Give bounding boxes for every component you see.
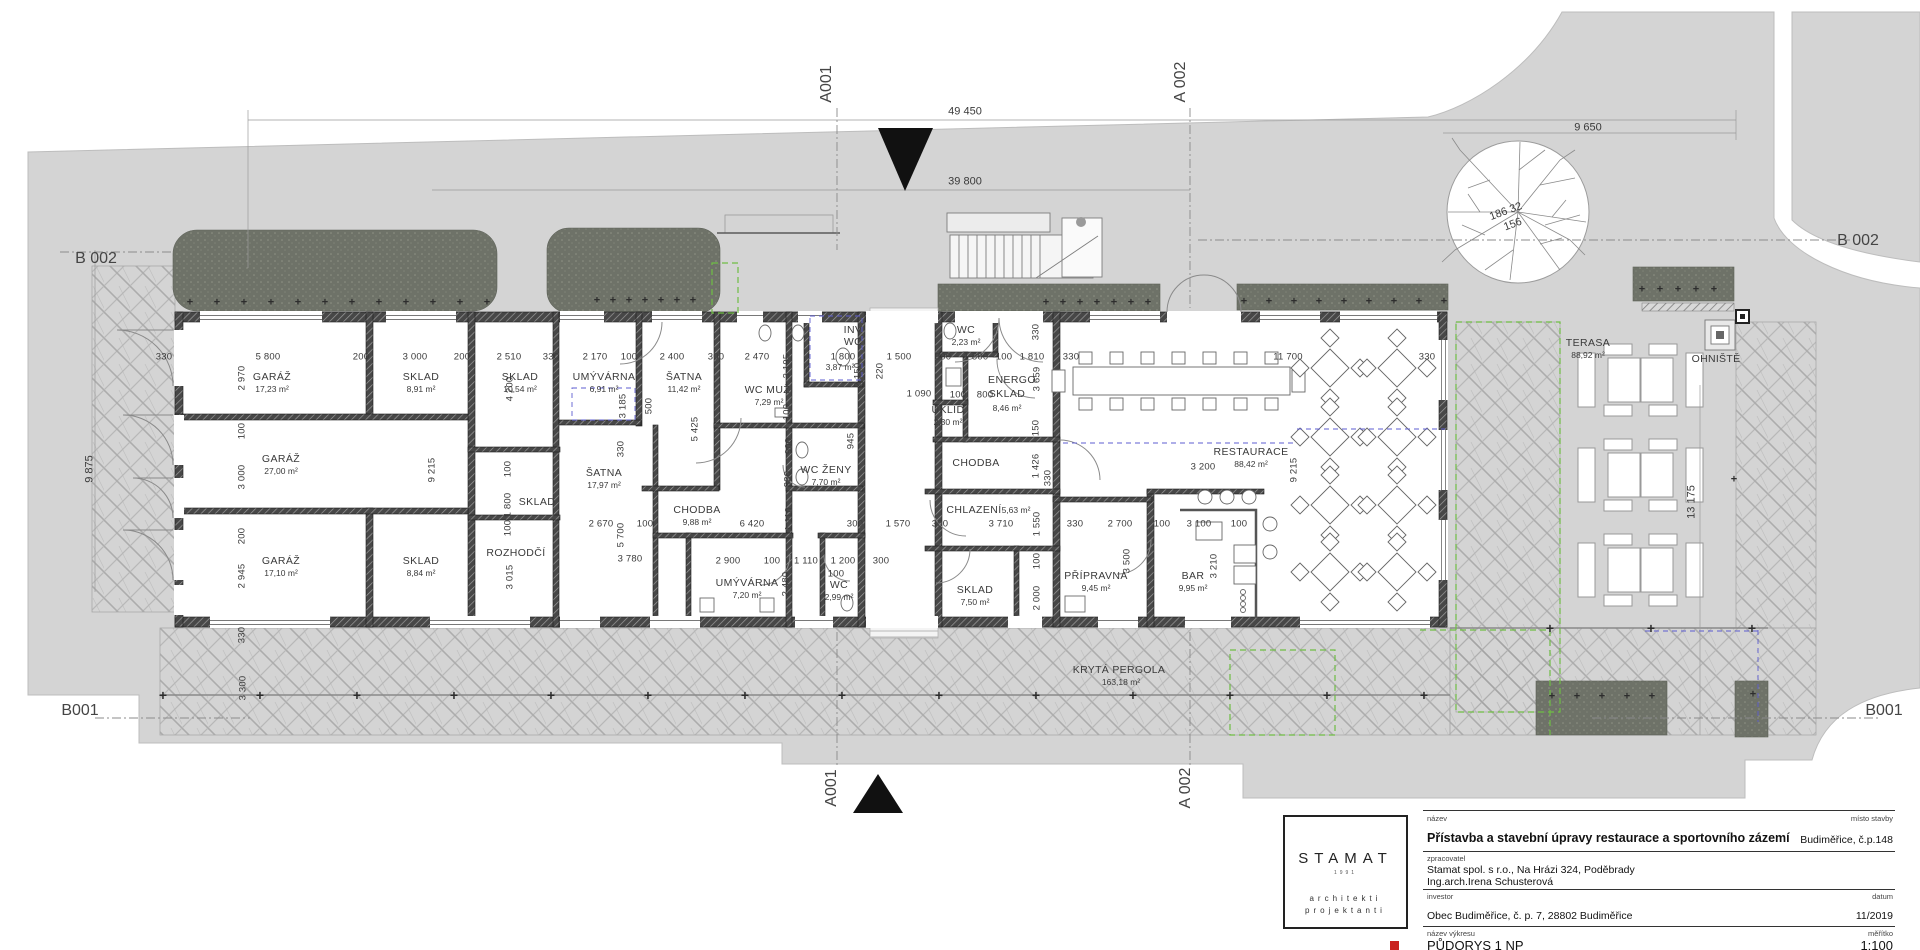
room-area: 27,00 m² xyxy=(264,467,298,476)
plant-mark: + xyxy=(1649,692,1655,703)
dim-label: 300 xyxy=(873,556,889,566)
dim-label: 3 000 xyxy=(237,465,247,490)
covered-pergola xyxy=(160,628,1450,735)
dim-label: 200 xyxy=(454,352,470,362)
field-label: místo stavby xyxy=(1851,814,1893,823)
section-marker-b001-right: B001 xyxy=(1865,703,1902,719)
section-marker-b002-left: B 002 xyxy=(75,251,117,267)
room-area: 17,10 m² xyxy=(264,569,298,578)
room-label: ENERGO xyxy=(988,375,1036,386)
room-label: UMÝVÁRNA xyxy=(716,578,779,589)
dim-label: 1 500 xyxy=(887,352,912,362)
plant-mark: + xyxy=(1077,298,1083,309)
plant-mark: + xyxy=(935,688,943,702)
room-area: 3,87 m² xyxy=(826,363,855,372)
plant-mark: + xyxy=(353,688,361,702)
plant-mark: + xyxy=(1366,297,1372,308)
plant-mark: + xyxy=(1316,297,1322,308)
dim-label: 100 xyxy=(764,556,780,566)
plant-mark: + xyxy=(1241,297,1247,308)
dim-label: 2 970 xyxy=(237,366,247,391)
field-label: zpracovatel xyxy=(1427,854,1465,863)
plant-mark: + xyxy=(1574,692,1580,703)
room-label: SKLAD xyxy=(403,372,439,383)
dim-label: 330 xyxy=(543,352,559,362)
dim-label: 5 800 xyxy=(256,352,281,362)
section-marker-b001-left: B001 xyxy=(61,703,98,719)
room-label: SKLAD xyxy=(989,389,1025,400)
overall-dimension: 9 875 xyxy=(85,455,96,483)
plant-mark: + xyxy=(674,296,680,307)
plant-mark: + xyxy=(268,298,274,309)
dim-label: 2 000 xyxy=(1032,586,1042,611)
plant-mark: + xyxy=(349,298,355,309)
dim-label: 1 110 xyxy=(794,556,818,566)
arrow-up-icon xyxy=(853,774,903,813)
plant-mark: + xyxy=(1748,621,1756,635)
plant-mark: + xyxy=(1599,692,1605,703)
field-label: název xyxy=(1427,814,1447,823)
plant-mark: + xyxy=(644,688,652,702)
room-label: INV xyxy=(844,325,863,336)
plant-mark: + xyxy=(1128,298,1134,309)
room-area: 9,45 m² xyxy=(1082,584,1111,593)
plant-mark: + xyxy=(376,298,382,309)
plant-mark: + xyxy=(241,298,247,309)
plant-mark: + xyxy=(1693,285,1699,296)
room-area: 88,92 m² xyxy=(1571,351,1605,360)
room-area: 17,23 m² xyxy=(255,385,289,394)
dim-label: 2 470 xyxy=(745,352,770,362)
room-area: 8,46 m² xyxy=(993,404,1022,413)
dim-label: 220 xyxy=(875,363,885,379)
logo-line2: projektanti xyxy=(1285,906,1406,915)
dim-label: 1 800 xyxy=(831,352,856,362)
plant-mark: + xyxy=(1032,688,1040,702)
plant-mark: + xyxy=(741,688,749,702)
room-label: GARÁŽ xyxy=(262,556,300,567)
plant-mark: + xyxy=(1111,298,1117,309)
dim-label: 300 xyxy=(932,519,948,529)
plant-mark: + xyxy=(256,688,264,702)
room-label: PŘÍPRAVNA xyxy=(1064,571,1128,582)
dim-label: 100 xyxy=(1032,553,1042,569)
plant-mark: + xyxy=(547,688,555,702)
room-area: 9,88 m² xyxy=(683,518,712,527)
dim-label: 9 215 xyxy=(1289,458,1299,483)
dim-label: 100 xyxy=(782,404,792,420)
project-place: Budiměřice, č.p.148 xyxy=(1800,834,1893,846)
plant-mark: + xyxy=(658,296,664,307)
plant-mark: + xyxy=(1341,297,1347,308)
dim-label: 100 xyxy=(1231,519,1247,529)
room-label: GARÁŽ xyxy=(262,454,300,465)
room-area: 8,91 m² xyxy=(407,385,436,394)
dim-label: 330 xyxy=(1043,470,1053,486)
dim-label: 1 800 xyxy=(503,493,513,518)
stamat-logo: STAMAT 1991 architekti projektanti xyxy=(1283,815,1408,929)
room-label: UMÝVÁRNA xyxy=(573,372,636,383)
plant-mark: + xyxy=(642,296,648,307)
dim-label: 330 xyxy=(616,441,626,457)
room-area: 7,70 m² xyxy=(812,478,841,487)
plant-mark: + xyxy=(626,296,632,307)
dim-label: 100 xyxy=(996,352,1012,362)
dim-label: 330 xyxy=(783,471,793,487)
dim-label: 1 810 xyxy=(1020,352,1045,362)
plant-mark: + xyxy=(1546,621,1554,635)
dim-label: 9 215 xyxy=(427,458,437,483)
plant-mark: + xyxy=(690,296,696,307)
dim-label: 330 xyxy=(156,352,172,362)
room-label: CHLAZENÍ xyxy=(946,505,1001,516)
plant-mark: + xyxy=(1094,298,1100,309)
dim-label: 1 110 xyxy=(784,507,794,531)
plant-mark: + xyxy=(1323,688,1331,702)
room-area: 2,99 m² xyxy=(825,593,854,602)
plant-mark: + xyxy=(1731,475,1737,486)
plant-mark: + xyxy=(1291,297,1297,308)
dim-label: 330 xyxy=(237,627,247,643)
dim-label: 5 425 xyxy=(690,417,700,442)
terrace-west-hatch xyxy=(1456,322,1560,712)
dim-label: 3 200 xyxy=(1191,462,1216,472)
dim-label: 100 xyxy=(237,423,247,439)
room-label: TERASA xyxy=(1566,338,1610,349)
plant-mark: + xyxy=(295,298,301,309)
room-area: 2,23 m² xyxy=(952,338,981,347)
project-title: Přístavba a stavební úpravy restaurace a… xyxy=(1427,831,1790,845)
dim-label: 100 xyxy=(637,519,653,529)
room-area: 7,20 m² xyxy=(733,591,762,600)
room-area: 10,54 m² xyxy=(503,385,537,394)
left-pergola xyxy=(92,266,175,612)
plant-mark: + xyxy=(403,298,409,309)
room-label: ROZHODČÍ xyxy=(486,548,545,559)
logo-name: STAMAT xyxy=(1285,850,1406,867)
plant-mark: + xyxy=(1675,285,1681,296)
logo-year: 1991 xyxy=(1285,870,1406,876)
plant-mark: + xyxy=(1043,298,1049,309)
section-marker-a002-top: A 002 xyxy=(1173,62,1189,103)
dim-label: 3 780 xyxy=(618,554,643,564)
room-label: GARÁŽ xyxy=(253,372,291,383)
dim-label: 3 195 xyxy=(782,354,792,379)
dim-label: 945 xyxy=(846,433,856,449)
plant-mark: + xyxy=(450,688,458,702)
plant-mark: + xyxy=(610,296,616,307)
terrace-east-hatch xyxy=(1736,322,1816,628)
dim-label: 1 426 xyxy=(1031,454,1041,479)
field-label: datum xyxy=(1872,892,1893,901)
room-label: ÚKLID xyxy=(932,405,965,416)
room-area: 7,29 m² xyxy=(755,398,784,407)
overall-dimension: 39 800 xyxy=(948,177,982,188)
room-label: SKLAD xyxy=(957,585,993,596)
plant-mark: + xyxy=(1647,621,1655,635)
plant-mark: + xyxy=(430,298,436,309)
dim-label: 2 480 xyxy=(781,572,791,597)
dim-label: 100 xyxy=(1154,519,1170,529)
field-label: investor xyxy=(1427,892,1453,901)
dim-label: 2 170 xyxy=(583,352,608,362)
plant-mark: + xyxy=(1416,297,1422,308)
dim-label: 150 xyxy=(1031,420,1041,436)
room-label: WC ŽENY xyxy=(800,465,851,476)
room-label: BAR xyxy=(1182,571,1205,582)
dim-label: 200 xyxy=(353,352,369,362)
room-label: ŠATNA xyxy=(586,468,622,479)
room-area: 9,95 m² xyxy=(1179,584,1208,593)
dim-label: 100 xyxy=(503,520,513,536)
neighbor-plot xyxy=(1792,12,1920,262)
logo-line1: architekti xyxy=(1285,894,1406,903)
dim-label: 100 xyxy=(828,569,844,579)
room-label: CHODBA xyxy=(673,505,720,516)
dim-label: 1 570 xyxy=(886,519,911,529)
plant-mark: + xyxy=(1129,688,1137,702)
plant-mark: + xyxy=(838,688,846,702)
dim-label: 300 xyxy=(847,519,863,529)
room-label: CHODBA xyxy=(952,458,999,469)
room-area: 7,50 m² xyxy=(961,598,990,607)
terrace-bench xyxy=(1642,303,1734,311)
external-stairs xyxy=(947,213,1102,278)
dim-label: 3 100 xyxy=(1187,519,1212,529)
floor-plan-sheet: STAMAT 1991 architekti projektanti název… xyxy=(0,0,1920,950)
plant-mark: + xyxy=(1657,285,1663,296)
room-area: 2,30 m² xyxy=(934,418,963,427)
dim-label: 2 400 xyxy=(660,352,685,362)
room-label: SKLAD xyxy=(403,556,439,567)
section-marker-a002-bottom: A 002 xyxy=(1178,768,1194,809)
room-label: RESTAURACE xyxy=(1214,447,1289,458)
plant-mark: + xyxy=(1391,297,1397,308)
plant-mark: + xyxy=(1549,692,1555,703)
drawing-scale: 1:100 xyxy=(1860,938,1893,950)
dim-label: 2 945 xyxy=(237,564,247,589)
plant-mark: + xyxy=(1624,692,1630,703)
dim-label: 3 210 xyxy=(1209,554,1219,579)
logo-accent-square xyxy=(1390,941,1399,950)
dim-label: 500 xyxy=(644,398,654,414)
dim-label: 1 800 xyxy=(964,352,989,362)
room-area: 88,42 m² xyxy=(1234,460,1268,469)
author-company: Stamat spol. s r.o., Na Hrázi 324, Poděb… xyxy=(1427,864,1635,876)
dim-label: 1 550 xyxy=(1032,512,1042,537)
plant-mark: + xyxy=(1711,285,1717,296)
overall-dimension: 49 450 xyxy=(948,107,982,118)
dim-label: 3 710 xyxy=(989,519,1014,529)
dim-label: 330 xyxy=(1031,324,1041,340)
room-label: ŠATNA xyxy=(666,372,702,383)
room-area: 17,97 m² xyxy=(587,481,621,490)
dim-label: 300 xyxy=(935,352,951,362)
section-marker-a001-bottom: A001 xyxy=(824,769,840,806)
date-value: 11/2019 xyxy=(1856,910,1893,922)
dim-label: 6 420 xyxy=(740,519,765,529)
dim-label: 2 670 xyxy=(589,519,614,529)
dim-label: 100 xyxy=(950,390,966,400)
dim-label: 330 xyxy=(1067,519,1083,529)
author-architect: Ing.arch.Irena Schusterová xyxy=(1427,876,1553,888)
dim-label: 3 015 xyxy=(505,565,515,590)
field-label: název výkresu xyxy=(1427,929,1475,938)
overall-dimension: 13 175 xyxy=(1687,485,1698,519)
dim-label: 2 150 xyxy=(853,363,863,388)
dim-label: 3 300 xyxy=(238,676,248,701)
dim-label: 330 xyxy=(1063,352,1079,362)
pergola-area: 163,18 m² xyxy=(1102,678,1140,687)
dim-label: 100 xyxy=(503,461,513,477)
room-label: SKLAD xyxy=(519,497,555,508)
room-area: 11,42 m² xyxy=(668,385,701,394)
dim-label: 200 xyxy=(237,528,247,544)
plant-mark: + xyxy=(594,296,600,307)
banquet-table xyxy=(1073,367,1290,395)
room-label: WC MUŽI xyxy=(745,385,794,396)
investor-value: Obec Budiměřice, č. p. 7, 28802 Budiměři… xyxy=(1427,910,1632,922)
title-table: název místo stavby Přístavba a stavební … xyxy=(1423,810,1895,950)
plant-mark: + xyxy=(484,298,490,309)
dim-label: 1 200 xyxy=(831,556,856,566)
section-marker-a001-top: A001 xyxy=(819,65,835,102)
dim-label: 330 xyxy=(1419,352,1435,362)
room-label: WC xyxy=(957,325,975,336)
plant-mark: + xyxy=(322,298,328,309)
restaurant-furniture xyxy=(1052,352,1305,410)
plant-mark: + xyxy=(1266,297,1272,308)
plant-mark: + xyxy=(187,298,193,309)
dim-label: 100 xyxy=(621,352,637,362)
plant-mark: + xyxy=(1060,298,1066,309)
field-label: měřítko xyxy=(1868,929,1893,938)
plant-mark: + xyxy=(214,298,220,309)
section-marker-b002-right: B 002 xyxy=(1837,233,1879,249)
plant-mark: + xyxy=(1226,688,1234,702)
plant-mark: + xyxy=(1441,297,1447,308)
dim-label: 5 700 xyxy=(616,523,626,548)
dim-label: 900 xyxy=(784,438,794,454)
room-label: SKLAD xyxy=(502,372,538,383)
dim-label: 1 090 xyxy=(907,389,932,399)
plant-mark: + xyxy=(1639,285,1645,296)
firepit-label: OHNIŠTĚ xyxy=(1692,354,1741,365)
dim-label: 3 185 xyxy=(618,394,628,419)
plant-mark: + xyxy=(1145,298,1151,309)
plant-mark: + xyxy=(1750,690,1756,701)
plant-mark: + xyxy=(457,298,463,309)
pergola-label: KRYTÁ PERGOLA xyxy=(1073,665,1165,676)
dim-label: 11 700 xyxy=(1273,352,1303,362)
room-area: 6,91 m² xyxy=(590,385,619,394)
drawing-name: PŮDORYS 1 NP xyxy=(1427,938,1524,950)
plant-mark: + xyxy=(159,688,167,702)
room-label: WC xyxy=(844,337,862,348)
dim-label: 300 xyxy=(708,352,724,362)
dim-label: 2 900 xyxy=(716,556,741,566)
room-area: 8,84 m² xyxy=(407,569,436,578)
plant-mark: + xyxy=(1420,688,1428,702)
room-label: WC xyxy=(830,580,848,591)
room-area: 5,63 m² xyxy=(1002,506,1031,515)
title-block: STAMAT 1991 architekti projektanti název… xyxy=(1283,810,1895,950)
dim-label: 3 000 xyxy=(403,352,428,362)
overall-dimension: 9 650 xyxy=(1574,123,1602,134)
dim-label: 2 510 xyxy=(497,352,522,362)
dim-label: 2 700 xyxy=(1108,519,1133,529)
stairs-post xyxy=(1076,217,1086,227)
